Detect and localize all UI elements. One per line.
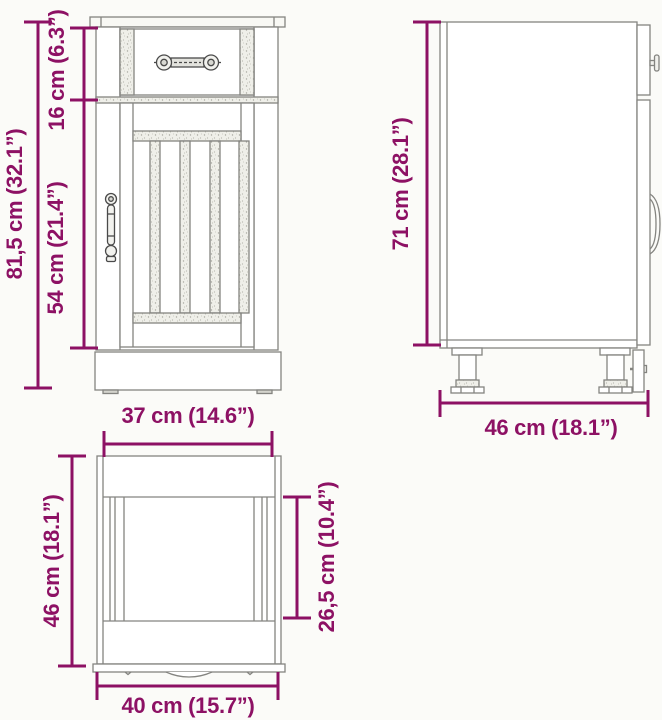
label-front-width: 37 cm (14.6”) xyxy=(121,405,254,427)
door-handle xyxy=(106,194,117,262)
label-side-depth: 46 cm (18.1”) xyxy=(484,417,617,439)
cabinet-dimension-diagram: 81,5 cm (32.1”) 16 cm (6.3”) 54 cm (21.4… xyxy=(0,0,662,720)
side-view-drawing xyxy=(440,22,660,393)
label-inner-depth: 26,5 cm (10.4”) xyxy=(316,482,338,633)
dim-carcass-height-line xyxy=(413,22,441,345)
dim-front-width-line xyxy=(104,431,272,457)
label-top-depth: 46 cm (18.1”) xyxy=(41,494,63,627)
dim-drawer-door-line xyxy=(70,28,98,348)
side-door-handle xyxy=(650,194,660,254)
label-carcass-height: 71 cm (28.1”) xyxy=(390,117,412,250)
top-view-drawing xyxy=(93,456,285,677)
front-plinth xyxy=(95,352,281,394)
label-total-width: 40 cm (15.7”) xyxy=(121,695,254,717)
side-feet xyxy=(451,348,647,393)
dim-side-depth-line xyxy=(440,390,648,417)
label-door-height: 54 cm (21.4”) xyxy=(45,181,67,314)
front-countertop xyxy=(90,17,285,27)
label-total-height: 81,5 cm (32.1”) xyxy=(4,129,26,280)
front-view-drawing xyxy=(90,17,285,394)
front-door xyxy=(120,103,254,347)
side-carcass xyxy=(440,22,637,348)
side-drawer-handle xyxy=(650,55,659,71)
label-top-section-height: 16 cm (6.3”) xyxy=(46,9,68,130)
dim-inner-depth-line xyxy=(283,497,311,618)
top-front-edge xyxy=(93,664,285,677)
